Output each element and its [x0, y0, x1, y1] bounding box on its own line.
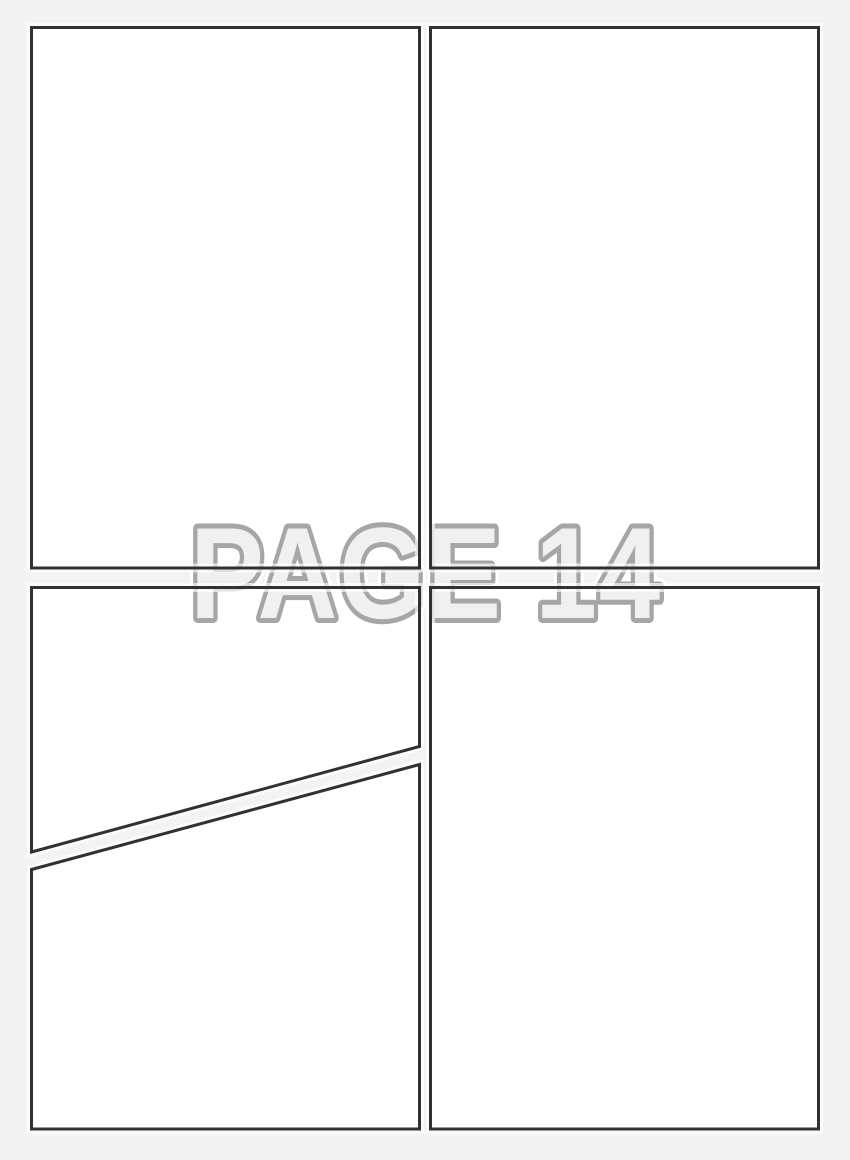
comic-page-template: PAGE 14 PAGE 14 — [0, 0, 850, 1160]
panel-top-right-fill — [431, 28, 819, 569]
panel-bottom-right-fill — [431, 588, 819, 1130]
comic-page-canvas: PAGE 14 PAGE 14 — [0, 0, 850, 1160]
panel-top-left-fill — [32, 28, 420, 569]
